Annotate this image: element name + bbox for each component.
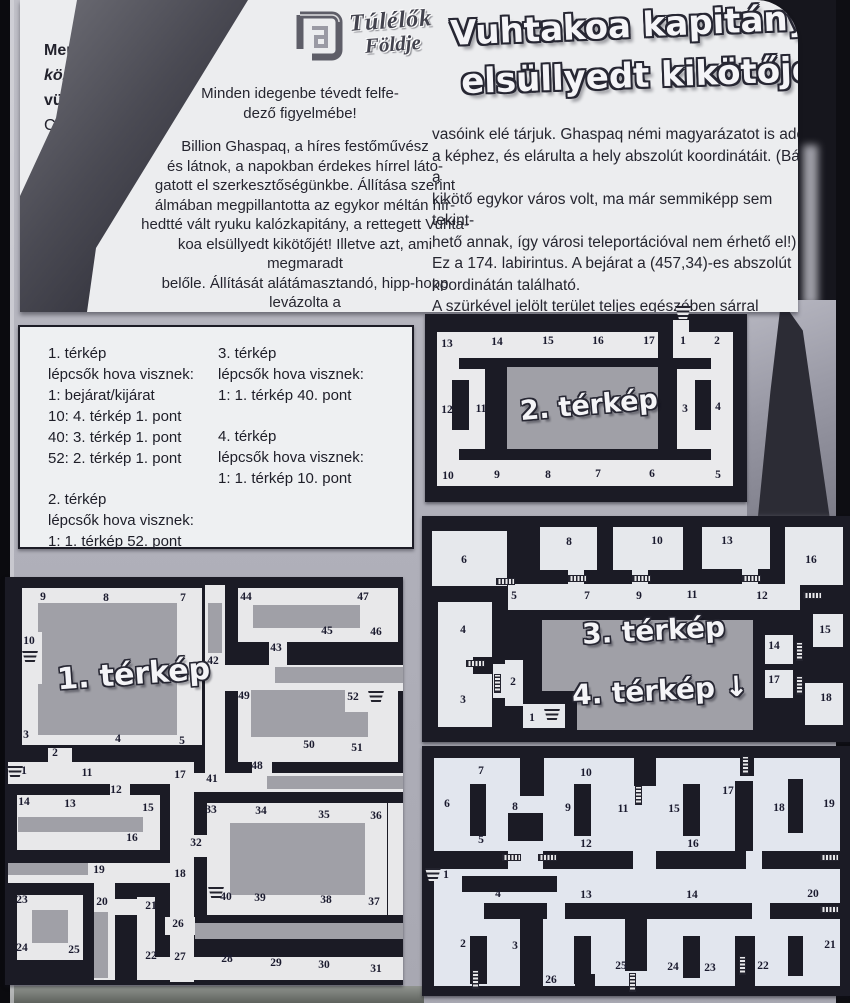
maze-mud [94, 912, 108, 978]
map-point-label: 21 [145, 900, 157, 912]
map-point-label: 6 [461, 554, 467, 566]
map-point-label: 18 [174, 868, 186, 880]
logo-line2: Földje [364, 29, 435, 59]
maze-mud [18, 817, 143, 832]
maze-wall [658, 332, 673, 358]
map-point-label: 11 [476, 403, 487, 415]
door-icon [742, 756, 749, 775]
door-icon [820, 906, 839, 913]
map-point-label: 13 [580, 889, 592, 901]
map-point-label: 23 [704, 962, 716, 974]
intro-paragraph: Billion Ghaspaq, a híres festőművészés l… [138, 137, 472, 312]
door-icon [629, 973, 636, 992]
map-point-label: 8 [103, 592, 109, 604]
door-icon [796, 676, 803, 695]
maze-floor [702, 527, 770, 569]
door-icon [635, 786, 642, 805]
map-point-label: 27 [174, 951, 186, 963]
map-point-label: 7 [595, 468, 601, 480]
map-point-label: 8 [566, 536, 572, 548]
door-icon [466, 660, 485, 667]
door-icon [739, 956, 746, 975]
map-point-label: 10 [23, 635, 35, 647]
map-point-label: 39 [254, 892, 266, 904]
map-point-label: 50 [303, 739, 315, 751]
map-point-label: 9 [565, 802, 571, 814]
map-point-label: 2 [714, 335, 720, 347]
map-point-label: 4 [115, 733, 121, 745]
map-point-label: 51 [351, 742, 363, 754]
map-point-label: 32 [190, 837, 202, 849]
map-point-label: 4 [715, 401, 721, 413]
maze-mud [251, 690, 345, 712]
map-point-label: 29 [270, 957, 282, 969]
map-point-label: 25 [615, 960, 627, 972]
map-point-label: 9 [40, 591, 46, 603]
legend-entry: 1: bejárat/kijárat [48, 385, 213, 406]
map-point-label: 8 [512, 801, 518, 813]
map-point-label: 15 [142, 802, 154, 814]
paragraph-line: A szürkével jelölt terület teljes egészé… [432, 296, 798, 312]
map-point-label: 18 [820, 692, 832, 704]
map-point-label: 11 [687, 589, 698, 601]
maze-mud [275, 667, 403, 683]
map-panel-1: 9871063452111174142444745464349525051481… [5, 577, 403, 985]
map-point-label: 16 [126, 832, 138, 844]
tf-logo-icon [288, 6, 348, 68]
map-point-label: 17 [768, 674, 780, 686]
map-point-label: 1 [680, 335, 686, 347]
legend-section-subtitle: lépcsők hova visznek: [48, 364, 213, 385]
map-point-label: 19 [93, 864, 105, 876]
map-point-label: 38 [320, 894, 332, 906]
map-point-label: 22 [757, 960, 769, 972]
map-point-label: 37 [368, 896, 380, 908]
map-point-label: 7 [584, 590, 590, 602]
door-icon [742, 575, 761, 582]
map-point-label: 14 [18, 796, 30, 808]
maze-floor [540, 527, 597, 570]
legend-section: 4. térképlépcsők hova visznek:1: 1. térk… [218, 426, 398, 489]
map-point-label: 3 [512, 940, 518, 952]
map-point-label: 7 [180, 592, 186, 604]
maze-wall [656, 851, 746, 869]
map-point-label: 5 [511, 590, 517, 602]
map-point-label: 20 [96, 896, 108, 908]
map-point-label: 9 [494, 469, 500, 481]
map-point-label: 10 [651, 535, 663, 547]
maze-wall [470, 784, 486, 836]
legend-section-title: 3. térkép [218, 343, 398, 364]
legend-section-title: 4. térkép [218, 426, 398, 447]
map-point-label: 3 [23, 729, 29, 741]
map-point-label: 26 [172, 918, 184, 930]
legend-column-1: 1. térképlépcsők hova visznek:1: bejárat… [48, 343, 213, 572]
map-point-label: 22 [145, 950, 157, 962]
page-title-line2: elsüllyedt kikötője [455, 50, 798, 103]
tower-silhouette [747, 300, 837, 518]
map-point-label: 46 [370, 626, 382, 638]
legend-entry: 1: 1. térkép 10. pont [218, 468, 398, 489]
map-point-label: 1 [443, 869, 449, 881]
map-point-label: 7 [478, 765, 484, 777]
map-point-label: 43 [270, 642, 282, 654]
map-point-label: 12 [441, 404, 453, 416]
map-point-label: 47 [357, 591, 369, 603]
map-point-label: 15 [668, 803, 680, 815]
maze-wall [788, 936, 803, 976]
legend-entry: 40: 3. térkép 1. pont [48, 427, 213, 448]
maze-floor [388, 803, 403, 915]
maze-wall [625, 918, 647, 971]
maze-wall [520, 746, 544, 796]
map-point-label: 1 [21, 765, 27, 777]
maze-mud [253, 605, 360, 628]
map-panel-2: 13141516171212113410987652. térkép [425, 314, 747, 502]
map-point-label: 6 [649, 468, 655, 480]
map-point-label: 16 [687, 838, 699, 850]
maze-mud [8, 863, 88, 875]
map-point-label: 45 [321, 625, 333, 637]
maze-wall [452, 380, 469, 430]
map-point-label: 14 [686, 889, 698, 901]
paragraph-line: hető annak, így városi teleportációval n… [432, 232, 798, 254]
maze-mud [267, 776, 403, 789]
legend-section-title: 1. térkép [48, 343, 213, 364]
map-point-label: 30 [318, 959, 330, 971]
door-icon [796, 642, 803, 661]
map-point-label: 12 [756, 590, 768, 602]
logo-text: Túlélők Földje [348, 5, 434, 60]
map-point-label: 10 [580, 767, 592, 779]
down-arrow-icon: ↓ [714, 669, 749, 704]
map-point-label: 28 [221, 953, 233, 965]
map-point-label: 13 [721, 535, 733, 547]
intro-line: gatott el szerkesztőségünkbe. Állítása s… [138, 176, 472, 196]
maze-mud [251, 712, 368, 737]
maze-wall [788, 779, 803, 833]
door-icon [494, 674, 501, 693]
map-point-label: 36 [370, 810, 382, 822]
map-point-label: 1 [529, 712, 535, 724]
map-point-label: 14 [491, 336, 503, 348]
door-icon [472, 970, 479, 989]
map-point-label: 19 [823, 798, 835, 810]
map-panel-3: 6810131657911124151417231813. térkép4. t… [422, 516, 850, 742]
maze-mud [208, 603, 222, 653]
intro-line: belőle. Állítását alátámasztandó, hipp-h… [138, 274, 472, 313]
maze-wall [422, 851, 508, 869]
maze-wall [520, 918, 543, 986]
maze-mud [32, 910, 68, 943]
door-icon [820, 854, 839, 861]
maze-wall [735, 781, 753, 851]
maze-wall [508, 813, 543, 841]
map-point-label: 49 [238, 690, 250, 702]
legend-entry: 52: 2. térkép 1. pont [48, 448, 213, 469]
maze-wall [634, 746, 656, 786]
article-panel: Mennyi pluszt kap Őrközösség erejétőlvül… [20, 0, 798, 312]
map-point-label: 14 [768, 640, 780, 652]
notice-text: Minden idegenbe tévedt felfe- dező figye… [176, 84, 424, 124]
maze-mud [195, 923, 403, 939]
map-point-label: 3 [460, 694, 466, 706]
legend-section-subtitle: lépcsők hova visznek: [48, 510, 213, 531]
map-point-label: 52 [347, 691, 359, 703]
map-point-label: 18 [773, 802, 785, 814]
door-icon [632, 575, 651, 582]
intro-line: hedtté vált ryuku kalózkapitány, a rette… [138, 215, 472, 235]
paragraph-line: kikötő egykor város volt, ma már semmiké… [432, 189, 798, 232]
map-point-label: 13 [441, 338, 453, 350]
paragraph-line: a képhez, és elárulta a hely abszolút ko… [432, 146, 798, 189]
maze-mud [230, 823, 365, 895]
map-point-label: 44 [240, 591, 252, 603]
map-point-label: 20 [807, 888, 819, 900]
maze-floor [673, 320, 689, 332]
map-point-label: 10 [442, 470, 454, 482]
map-point-label: 17 [722, 785, 734, 797]
map-point-label: 6 [444, 798, 450, 810]
map-point-label: 3 [682, 403, 688, 415]
door-icon [502, 854, 521, 861]
map-point-label: 34 [255, 805, 267, 817]
map-point-label: 48 [251, 760, 263, 772]
map-point-label: 17 [643, 335, 655, 347]
legend-box: 1. térképlépcsők hova visznek:1: bejárat… [18, 325, 414, 549]
map-point-label: 40 [220, 891, 232, 903]
map-point-label: 23 [16, 894, 28, 906]
map-point-label: 33 [205, 804, 217, 816]
legend-section-subtitle: lépcsők hova visznek: [218, 447, 398, 468]
maze-wall [565, 903, 752, 919]
maze-wall [575, 974, 595, 986]
paragraph-line: vasóink elé tárjuk. Ghaspaq némi magyará… [432, 124, 798, 146]
map-point-label: 21 [824, 939, 836, 951]
map-point-label: 11 [618, 803, 629, 815]
map-point-label: 13 [64, 798, 76, 810]
legend-section-title: 2. térkép [48, 489, 213, 510]
map-point-label: 2 [510, 676, 516, 688]
intro-line: álmában megpillantotta az egykor méltán … [138, 196, 472, 216]
stairs-icon [674, 306, 692, 319]
intro-line: Billion Ghaspaq, a híres festőművész [138, 137, 472, 157]
legend-entry: 1: 1. térkép 40. pont [218, 385, 398, 406]
door-icon [496, 578, 515, 585]
legend-section: 2. térképlépcsők hova visznek:1: 1. térk… [48, 489, 213, 552]
legend-entry: 1: 1. térkép 52. pont [48, 531, 213, 552]
map-point-label: 31 [370, 963, 382, 975]
legend-entry: 10: 4. térkép 1. pont [48, 406, 213, 427]
maze-floor [805, 683, 843, 725]
map-point-label: 5 [478, 834, 484, 846]
map-point-label: 11 [82, 767, 93, 779]
map-point-label: 17 [174, 769, 186, 781]
legend-section: 3. térképlépcsők hova visznek:1: 1. térk… [218, 343, 398, 406]
maze-wall [574, 784, 591, 836]
maze-floor [613, 527, 683, 570]
map-point-label: 24 [16, 942, 28, 954]
map-point-label: 5 [715, 469, 721, 481]
paragraph-line: koordinátán található. [432, 275, 798, 297]
maze-wall [683, 936, 700, 978]
map-point-label: 2 [52, 747, 58, 759]
paragraph-line: Ez a 174. labirintus. A bejárat a (457,3… [432, 253, 798, 275]
photo-highlight [803, 145, 818, 305]
maze-wall [695, 380, 711, 430]
maze-wall [462, 876, 557, 892]
legend-section-subtitle: lépcsők hova visznek: [218, 364, 398, 385]
door-icon [538, 854, 557, 861]
map-point-label: 4 [495, 888, 501, 900]
map-point-label: 16 [805, 554, 817, 566]
map-point-label: 9 [636, 590, 642, 602]
magazine-page: Mennyi pluszt kap Őrközösség erejétőlvül… [0, 0, 850, 1003]
map-point-label: 12 [110, 784, 122, 796]
maze-wall [683, 784, 700, 836]
map-point-label: 2 [460, 938, 466, 950]
notice-line1: Minden idegenbe tévedt felfe- [176, 84, 424, 104]
map-point-label: 41 [206, 773, 218, 785]
map-point-label: 25 [68, 944, 80, 956]
map-panel-4: 7101768911151819512161413142023252423222… [422, 746, 850, 996]
map-point-label: 16 [592, 335, 604, 347]
legend-section: 1. térképlépcsők hova visznek:1: bejárat… [48, 343, 213, 469]
map-point-label: 5 [179, 735, 185, 747]
legend-column-2: 3. térképlépcsők hova visznek:1: 1. térk… [218, 343, 398, 509]
map-point-label: 15 [819, 624, 831, 636]
map-point-label: 35 [318, 809, 330, 821]
map-point-label: 12 [580, 838, 592, 850]
map-point-label: 15 [542, 335, 554, 347]
page-title-line1: Vuhtakoa kapitány [447, 0, 798, 54]
intro-line: koa elsüllyedt kikötőjét! Illetve azt, a… [138, 235, 472, 274]
maze-floor [8, 762, 192, 784]
adjacent-page-photo [747, 300, 837, 518]
map-point-label: 4 [460, 624, 466, 636]
map-point-label: 26 [545, 974, 557, 986]
map-point-label: 8 [545, 469, 551, 481]
door-icon [568, 575, 587, 582]
maze-wall [484, 903, 547, 919]
door-icon [803, 592, 822, 599]
bottom-edge-strip [0, 986, 424, 1003]
map-point-label: 24 [667, 961, 679, 973]
right-column-paragraph: vasóink elé tárjuk. Ghaspaq némi magyará… [432, 124, 798, 312]
notice-line2: dező figyelmébe! [176, 104, 424, 124]
intro-line: és látnok, a napokban érdekes hírrel lát… [138, 157, 472, 177]
